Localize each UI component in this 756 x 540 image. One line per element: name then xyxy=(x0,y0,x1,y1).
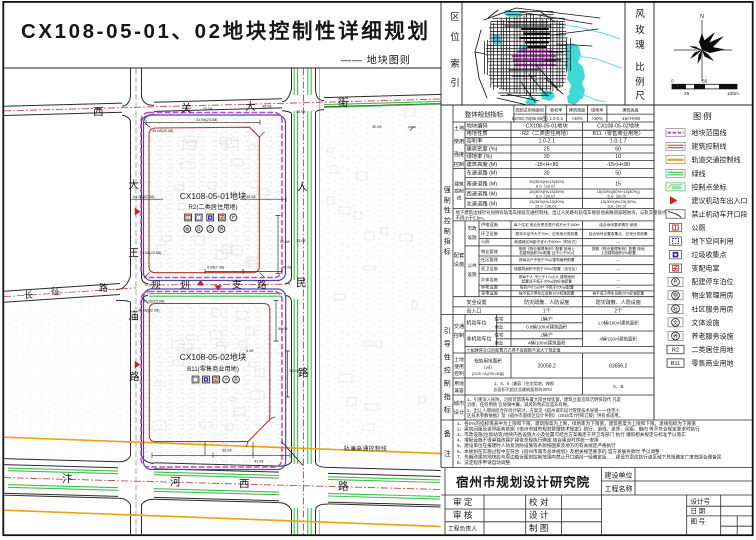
svg-text:绿线: 绿线 xyxy=(692,169,706,178)
svg-text:P: P xyxy=(224,377,227,382)
svg-text:45.08(30.08): 45.08(30.08) xyxy=(152,129,174,133)
svg-text:45.08: 45.08 xyxy=(282,266,292,270)
svg-text:控: 控 xyxy=(444,216,451,225)
svg-text:汴: 汴 xyxy=(62,472,73,485)
svg-text:15: 15 xyxy=(615,182,621,188)
svg-text:新建城区间距不宜小于800m（附设式）: 新建城区间距不宜小于800m（附设式） xyxy=(514,239,579,244)
svg-text:公共: 公共 xyxy=(467,262,477,269)
svg-text:—: — xyxy=(616,267,620,271)
svg-text:设施: 设施 xyxy=(467,271,477,278)
svg-text:轨道交通控制线: 轨道交通控制线 xyxy=(344,445,387,453)
svg-text:物业管理: 物业管理 xyxy=(481,248,499,255)
svg-text:R2: R2 xyxy=(672,348,679,354)
svg-text:西: 西 xyxy=(239,478,250,490)
svg-text:校 对: 校 对 xyxy=(529,497,549,507)
svg-text:大: 大 xyxy=(245,100,256,113)
svg-text:6.0（20.0）: 6.0（20.0） xyxy=(608,204,629,209)
svg-text:指: 指 xyxy=(444,237,451,246)
svg-text:按建筑面积不低于300㎡配置（含社区）: 按建筑面积不低于300㎡配置（含社区） xyxy=(514,266,579,271)
svg-text:区技术参数依据》及《宿州市面街区设计导则》（2016年7月修: 区技术参数依据》及《宿州市面街区设计导则》（2016年7月修订版）供有关适用。 xyxy=(467,412,623,419)
svg-text:路: 路 xyxy=(257,279,267,291)
svg-text:6.0（20.0）: 6.0（20.0） xyxy=(536,184,557,189)
svg-text:路: 路 xyxy=(298,366,309,379)
svg-text:整体规划指标: 整体规划指标 xyxy=(465,110,504,119)
svg-text:工程负责人: 工程负责人 xyxy=(448,525,477,533)
svg-text:文体设施: 文体设施 xyxy=(481,276,499,283)
svg-text:4.08(23.08): 4.08(23.08) xyxy=(142,251,162,255)
svg-text:人: 人 xyxy=(297,181,308,193)
svg-text:环卫设施: 环卫设施 xyxy=(481,230,499,237)
svg-text:设 计: 设 计 xyxy=(529,510,549,520)
svg-text:注: 注 xyxy=(444,449,451,458)
svg-text:控: 控 xyxy=(444,366,451,375)
svg-text:设计号: 设计号 xyxy=(691,497,711,506)
svg-text:63656.2: 63656.2 xyxy=(609,364,627,370)
svg-text:>30%: >30% xyxy=(592,116,603,121)
svg-text:地块编码: 地块编码 xyxy=(467,122,488,130)
svg-text:30.08: 30.08 xyxy=(296,110,306,114)
svg-text:按每百户不低于30㎡建筑面积配置: 按每百户不低于30㎡建筑面积配置 xyxy=(519,257,575,262)
svg-text:地块范围线: 地块范围线 xyxy=(692,128,727,137)
svg-text:支: 支 xyxy=(232,279,242,291)
svg-text:出入口: 出入口 xyxy=(467,308,482,315)
svg-text:<40%: <40% xyxy=(572,116,583,121)
svg-text:图例: 图例 xyxy=(693,111,713,121)
svg-text:设施: 设施 xyxy=(467,234,477,241)
svg-text:30: 30 xyxy=(544,171,550,177)
svg-text:41.08(23.08): 41.08(23.08) xyxy=(143,299,165,303)
svg-text:北退道路 (M): 北退道路 (M) xyxy=(467,200,498,208)
svg-text:线: 线 xyxy=(457,195,462,202)
svg-text:路: 路 xyxy=(129,370,140,383)
svg-text:物: 物 xyxy=(185,226,189,233)
svg-text:总面积不超过总建筑面积的30%）: 总面积不超过总建筑面积的30%） xyxy=(493,386,554,392)
svg-text:审 核: 审 核 xyxy=(453,510,473,520)
svg-text:瑰: 瑰 xyxy=(635,39,645,51)
svg-text:总建筑面积2‰配置 且不小于50㎡: 总建筑面积2‰配置 且不小于50㎡ xyxy=(519,250,574,255)
svg-text:建筑高度 (M): 建筑高度 (M) xyxy=(467,160,498,168)
svg-text:东退道路 (M): 东退道路 (M) xyxy=(467,169,498,177)
svg-text:55.08: 55.08 xyxy=(222,449,232,453)
svg-text:医卫设施: 医卫设施 xyxy=(481,265,499,272)
svg-text:-15<H<80: -15<H<80 xyxy=(621,116,641,121)
svg-text:二类居住用地: 二类居住用地 xyxy=(692,345,734,354)
svg-text:0: 0 xyxy=(671,79,674,85)
svg-text:玫: 玫 xyxy=(635,24,645,36)
svg-text:※配建停车位的配置方式得不宜报数不宜大于规定值: ※配建停车位的配置方式得不宜报数不宜大于规定值 xyxy=(467,347,561,353)
svg-text:制: 制 xyxy=(444,195,451,204)
svg-text:南退道路 (M): 南退道路 (M) xyxy=(467,180,498,188)
svg-text:土地: 土地 xyxy=(454,356,464,363)
svg-text:路: 路 xyxy=(338,480,349,493)
svg-text:P: P xyxy=(232,215,235,220)
svg-text:文体设施: 文体设施 xyxy=(692,318,720,327)
svg-text:标: 标 xyxy=(444,247,451,256)
svg-text:1.0-2.2: 1.0-2.2 xyxy=(550,116,564,121)
svg-text:日 期: 日 期 xyxy=(691,507,706,515)
svg-text:R2(二类居住用地): R2(二类居住用地) xyxy=(188,203,237,211)
svg-text:社: 社 xyxy=(197,226,201,233)
svg-text:使用: 使用 xyxy=(454,363,464,370)
svg-text:商业: 商业 xyxy=(495,340,504,347)
svg-text:30.08: 30.08 xyxy=(372,125,382,129)
svg-text:—: — xyxy=(616,286,620,290)
svg-text:规: 规 xyxy=(151,281,161,292)
svg-text:8、法定程序甲请自动调整: 8、法定程序甲请自动调整 xyxy=(457,459,510,466)
svg-text:养老服务设施: 养老服务设施 xyxy=(692,331,734,340)
svg-text:城市: 城市 xyxy=(454,399,464,407)
svg-text:使用: 使用 xyxy=(454,137,464,145)
svg-text:1.0辆/100㎡建筑面积: 1.0辆/100㎡建筑面积 xyxy=(598,320,640,327)
svg-text:服务半径不大于70m，应采用分类收集: 服务半径不大于70m，应采用分类收集 xyxy=(515,231,578,236)
svg-text:90.08: 90.08 xyxy=(280,240,290,244)
svg-text:15.0（20.0）: 15.0（20.0） xyxy=(535,204,559,209)
svg-text:防灾疏散、人防设施: 防灾疏散、人防设施 xyxy=(524,299,569,306)
svg-text:95.08: 95.08 xyxy=(352,447,362,451)
svg-text:配置且不低于300㎡的标准配置: 配置且不低于300㎡的标准配置 xyxy=(521,278,572,283)
svg-text:街: 街 xyxy=(338,96,349,109)
svg-text:CX108-05-01地块: CX108-05-01地块 xyxy=(526,122,569,130)
svg-text:交通: 交通 xyxy=(454,322,465,330)
svg-text:控制: 控制 xyxy=(454,331,464,339)
svg-text:容积率: 容积率 xyxy=(550,107,562,113)
svg-text:公厕: 公厕 xyxy=(692,224,706,232)
svg-text:零售商业用地: 零售商业用地 xyxy=(692,358,734,367)
svg-text:10: 10 xyxy=(615,154,621,160)
svg-text:住宅: 住宅 xyxy=(495,316,504,322)
svg-text:长: 长 xyxy=(24,289,33,300)
svg-text:25.08: 25.08 xyxy=(203,107,213,111)
svg-text:结合地块要求情况 使用: 结合地块要求情况 使用 xyxy=(599,222,637,227)
svg-text:控制: 控制 xyxy=(454,188,464,195)
svg-text:15.08: 15.08 xyxy=(296,239,306,243)
svg-text:强度: 强度 xyxy=(454,150,464,158)
svg-text:征: 征 xyxy=(51,287,60,297)
svg-text:划: 划 xyxy=(180,280,190,292)
svg-text:—: — xyxy=(616,240,620,244)
svg-text:控制点坐标: 控制点坐标 xyxy=(692,182,727,191)
svg-text:4.08(7.08): 4.08(7.08) xyxy=(207,266,225,270)
svg-text:100m: 100m xyxy=(727,91,739,97)
svg-text:30: 30 xyxy=(544,154,550,160)
svg-text:西: 西 xyxy=(93,106,104,118)
svg-text:4辆/100㎡建筑面积: 4辆/100㎡建筑面积 xyxy=(528,340,566,347)
svg-text:指: 指 xyxy=(444,392,451,401)
svg-text:4辆/100㎡建筑面积: 4辆/100㎡建筑面积 xyxy=(600,336,638,343)
svg-text:44.08(22.08): 44.08(22.08) xyxy=(133,195,155,199)
svg-text:审 定: 审 定 xyxy=(453,497,473,507)
svg-text:41.08: 41.08 xyxy=(254,460,264,464)
svg-text:B11（零售商业用地）: B11（零售商业用地） xyxy=(592,129,643,137)
svg-text:建筑控制线: 建筑控制线 xyxy=(692,142,727,151)
svg-text:45.08: 45.08 xyxy=(246,195,256,199)
svg-text:结合地块设置收集点，应采分类收集: 结合地块设置收集点，应采分类收集 xyxy=(589,231,648,236)
svg-text:设计: 设计 xyxy=(454,408,464,416)
svg-text:不得小于5.0m。: 不得小于5.0m。 xyxy=(456,215,488,222)
svg-text:垃圾收集点: 垃圾收集点 xyxy=(692,250,727,259)
svg-text:50.08: 50.08 xyxy=(278,327,288,331)
svg-text:31.08(23.08): 31.08(23.08) xyxy=(196,118,218,122)
svg-text:文: 文 xyxy=(673,319,678,326)
svg-text:河: 河 xyxy=(170,476,181,488)
svg-text:建筑高度: 建筑高度 xyxy=(622,107,638,113)
svg-text:强: 强 xyxy=(444,186,451,194)
svg-text:市政: 市政 xyxy=(467,225,477,232)
svg-text:规划用地面积: 规划用地面积 xyxy=(474,358,502,365)
svg-text:制 图: 制 图 xyxy=(529,523,548,533)
svg-text:每个住宅 电业负责总表户线不大于150m: 每个住宅 电业负责总表户线不大于150m xyxy=(514,222,580,227)
svg-text:宿州市规划设计研究院: 宿州市规划设计研究院 xyxy=(456,475,590,490)
svg-text:建筑密度 (%): 建筑密度 (%) xyxy=(467,144,498,152)
svg-text:引: 引 xyxy=(444,326,451,335)
svg-text:位: 位 xyxy=(450,31,460,43)
svg-text:1个: 1个 xyxy=(543,309,551,315)
svg-text:20058.2: 20058.2 xyxy=(538,364,556,370)
svg-text:P: P xyxy=(674,280,678,286)
svg-text:地下空间利用: 地下空间利用 xyxy=(692,237,734,246)
svg-text:用地: 用地 xyxy=(454,380,464,387)
svg-text:—: — xyxy=(616,278,620,282)
svg-text:50: 50 xyxy=(702,79,708,85)
svg-text:50.08: 50.08 xyxy=(290,369,300,373)
svg-text:1.0-2.1: 1.0-2.1 xyxy=(538,139,555,145)
svg-text:图 号: 图 号 xyxy=(691,518,706,526)
svg-text:安全设置: 安全设置 xyxy=(467,299,487,306)
svg-text:禁止机动车开口段: 禁止机动车开口段 xyxy=(692,209,748,218)
svg-text:西退道路 (M): 西退道路 (M) xyxy=(467,190,498,198)
svg-text:商业: 商业 xyxy=(495,324,504,331)
svg-text:住宅: 住宅 xyxy=(495,332,504,338)
svg-text:上总建筑面积2‰配置: 上总建筑面积2‰配置 xyxy=(601,250,637,255)
svg-text:土地: 土地 xyxy=(454,124,464,132)
svg-text:物: 物 xyxy=(673,292,678,299)
svg-text:变配电室: 变配电室 xyxy=(692,264,720,273)
svg-text:绿地率: 绿地率 xyxy=(591,107,603,113)
svg-text:防灾疏散、人防设施: 防灾疏散、人防设施 xyxy=(596,299,641,306)
svg-text:配建停车泊位: 配建停车泊位 xyxy=(692,277,734,286)
svg-text:供电设施: 供电设施 xyxy=(481,221,499,228)
svg-text:63700.78(95.55亩): 63700.78(95.55亩) xyxy=(512,115,548,122)
svg-text:按每千人 不少于1.0㎡/人 建筑面积: 按每千人 不少于1.0㎡/人 建筑面积 xyxy=(519,274,575,279)
svg-text:建筑: 建筑 xyxy=(454,181,464,188)
svg-text:60: 60 xyxy=(615,146,621,152)
svg-text:2个: 2个 xyxy=(614,309,622,315)
svg-text:养: 养 xyxy=(673,333,678,340)
svg-text:按不低于停车位总数10%标准配置: 按不低于停车位总数10%标准配置 xyxy=(519,291,575,296)
svg-text:按不低于停车位数20%标准配置: 按不低于停车位数20%标准配置 xyxy=(592,291,644,296)
svg-text:-15<H<80: -15<H<80 xyxy=(606,162,630,168)
svg-text:索: 索 xyxy=(450,58,460,70)
svg-text:非机动车位: 非机动车位 xyxy=(467,336,492,343)
svg-text:比: 比 xyxy=(635,61,645,73)
svg-text:45.08: 45.08 xyxy=(262,105,272,109)
svg-text:CX108-05-02地块: CX108-05-02地块 xyxy=(597,122,640,130)
svg-text:（㎡）: （㎡） xyxy=(481,364,495,370)
svg-text:—— 地块图则: —— 地块图则 xyxy=(341,54,411,67)
svg-text:控制: 控制 xyxy=(454,370,464,377)
svg-text:性: 性 xyxy=(444,352,451,361)
svg-text:备: 备 xyxy=(444,429,451,438)
svg-text:导: 导 xyxy=(444,340,451,348)
svg-text:—: — xyxy=(616,258,620,262)
svg-text:区: 区 xyxy=(450,12,460,23)
svg-text:例: 例 xyxy=(635,76,645,88)
svg-text:R2（二类居住用地）: R2（二类居住用地） xyxy=(522,129,571,137)
svg-text:制: 制 xyxy=(444,226,451,235)
svg-text:CX108-05-01地块: CX108-05-01地块 xyxy=(180,191,247,201)
svg-text:控制: 控制 xyxy=(454,160,464,168)
svg-text:建筑密度: 建筑密度 xyxy=(569,107,585,113)
svg-text:1、5、8（兼容（住宅用地，按照: 1、5、8（兼容（住宅用地，按照 xyxy=(494,380,554,386)
svg-text:用地性质: 用地性质 xyxy=(467,129,489,137)
svg-text:(2125.74㎡/92.06亩): (2125.74㎡/92.06亩) xyxy=(472,371,505,376)
svg-text:大: 大 xyxy=(129,178,140,191)
svg-text:A、B: A、B xyxy=(613,384,624,389)
svg-text:1辆/户: 1辆/户 xyxy=(540,316,552,323)
svg-text:物业管理用房: 物业管理用房 xyxy=(692,291,734,300)
svg-text:容积率: 容积率 xyxy=(467,137,484,145)
svg-text:-15<H<80: -15<H<80 xyxy=(535,162,559,168)
svg-text:关: 关 xyxy=(181,102,192,115)
svg-text:0.8辆/100㎡建筑面积: 0.8辆/100㎡建筑面积 xyxy=(526,324,568,331)
svg-text:B11(零售商业用地): B11(零售商业用地) xyxy=(187,365,239,373)
svg-text:1.0-1.7: 1.0-1.7 xyxy=(610,139,627,145)
svg-text:性: 性 xyxy=(444,206,451,215)
svg-text:CX108-05-01、02地块控制性详细规划: CX108-05-01、02地块控制性详细规划 xyxy=(21,19,431,43)
svg-text:2辆/户: 2辆/户 xyxy=(540,332,552,339)
svg-text:B11: B11 xyxy=(671,361,681,367)
svg-text:制: 制 xyxy=(444,379,451,388)
svg-text:民: 民 xyxy=(296,277,307,289)
svg-text:44.08(32.08): 44.08(32.08) xyxy=(138,309,160,313)
svg-text:25: 25 xyxy=(684,91,690,97)
svg-text:建议机动车出入口: 建议机动车出入口 xyxy=(692,196,748,205)
svg-text:尺: 尺 xyxy=(635,91,645,102)
svg-text:轨道交通控制线: 轨道交通控制线 xyxy=(692,155,741,164)
svg-text:4.08: 4.08 xyxy=(246,349,253,353)
svg-text:CX108-05-02地块: CX108-05-02地块 xyxy=(180,352,247,362)
svg-text:充电设施: 充电设施 xyxy=(481,290,499,297)
svg-text:N: N xyxy=(700,14,704,20)
svg-text:兼容: 兼容 xyxy=(454,387,464,394)
svg-text:引: 引 xyxy=(450,78,460,89)
svg-text:机动车位: 机动车位 xyxy=(467,320,487,327)
svg-text:建设单位: 建设单位 xyxy=(605,471,633,480)
svg-text:社区服务用房: 社区服务用房 xyxy=(692,304,734,313)
svg-text:社: 社 xyxy=(673,306,678,313)
svg-text:规划总用地面积: 规划总用地面积 xyxy=(515,107,544,113)
svg-text:工程名称: 工程名称 xyxy=(605,484,633,493)
svg-text:路: 路 xyxy=(99,282,108,293)
svg-text:标: 标 xyxy=(444,405,451,414)
svg-text:设施: 设施 xyxy=(454,260,464,268)
svg-text:社区管理: 社区管理 xyxy=(481,256,499,263)
svg-text:每百户0.1㎡/户 不低于200㎡配置: 每百户0.1㎡/户 不低于200㎡配置 xyxy=(520,285,574,290)
svg-text:25: 25 xyxy=(544,146,550,152)
svg-text:风: 风 xyxy=(635,9,645,20)
svg-text:50: 50 xyxy=(615,171,621,177)
svg-text:配套: 配套 xyxy=(454,251,465,259)
svg-text:王: 王 xyxy=(129,247,140,259)
svg-text:绿地率 (%): 绿地率 (%) xyxy=(467,152,493,160)
